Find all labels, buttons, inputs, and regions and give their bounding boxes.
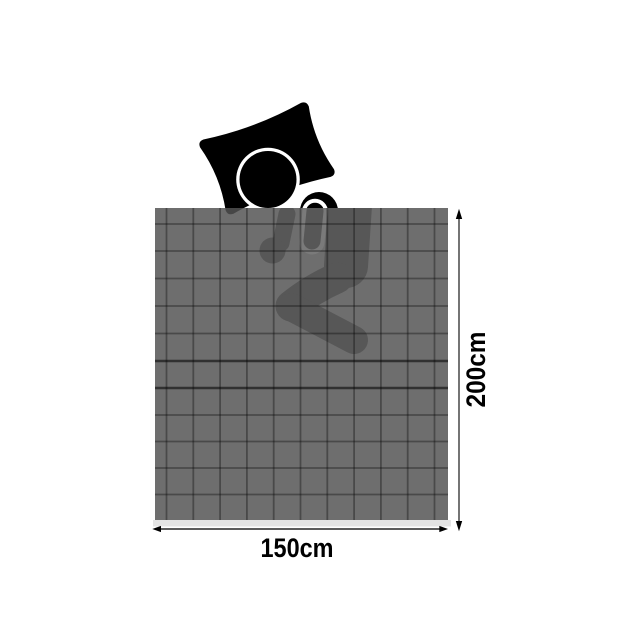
svg-text:200cm: 200cm [461, 332, 491, 408]
svg-text:150cm: 150cm [261, 533, 334, 563]
